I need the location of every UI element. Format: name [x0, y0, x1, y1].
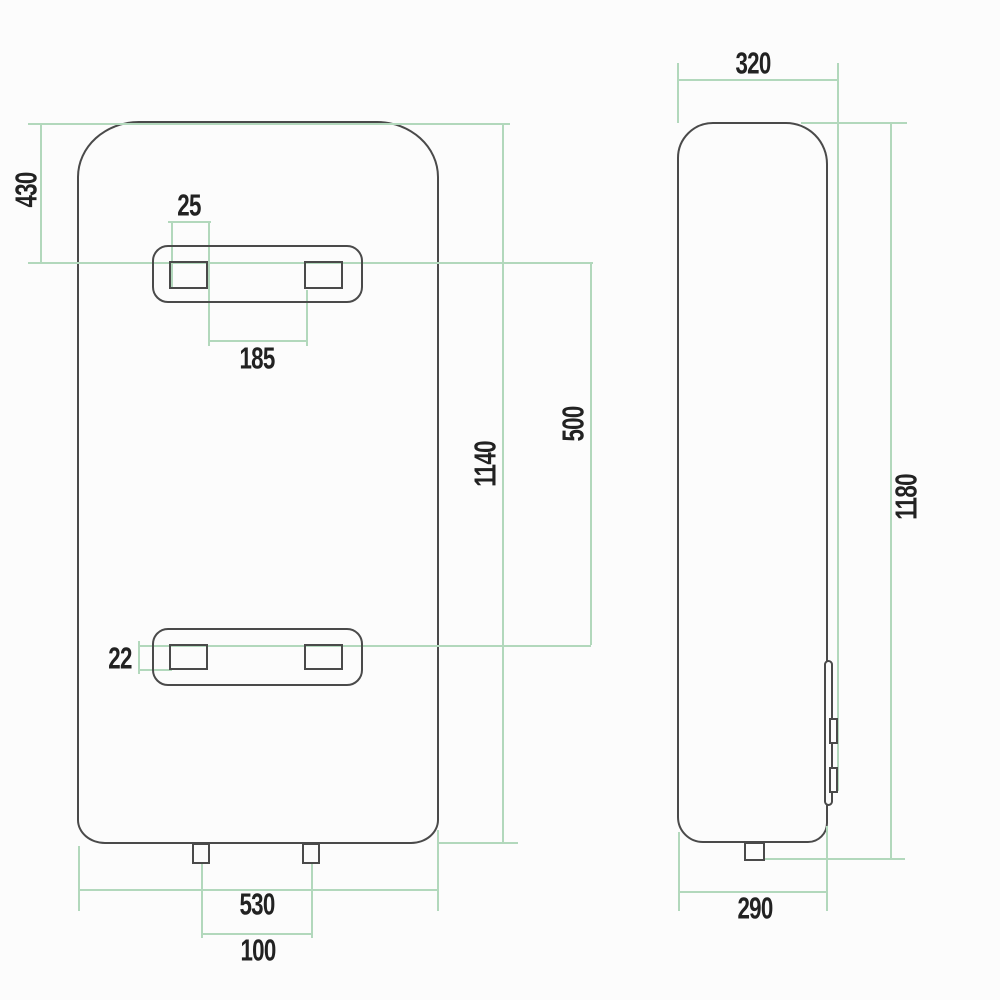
- dim-label-500: 500: [558, 406, 589, 441]
- extension-line-100-left: [201, 862, 203, 938]
- upper-bracket-slot-left: [169, 261, 208, 289]
- dim-label-22: 22: [108, 643, 131, 674]
- dim-label-25: 25: [177, 190, 200, 221]
- extension-line-290-right: [826, 826, 828, 911]
- dim-label-320: 320: [735, 48, 770, 79]
- extension-line-tank-top: [28, 123, 510, 125]
- dim-label-290: 290: [737, 893, 772, 924]
- dim-label-100: 100: [240, 935, 275, 966]
- extension-line-290-left: [678, 832, 680, 911]
- rear-hook-lower: [829, 767, 838, 793]
- dim-label-530: 530: [239, 889, 274, 920]
- side-pipe-stub: [744, 842, 765, 861]
- lower-bracket-slot-left: [169, 644, 208, 670]
- lower-bracket-slot-right: [304, 644, 343, 670]
- dim-line-22: [138, 641, 140, 674]
- front-pipe-stub-left: [192, 843, 210, 864]
- upper-bracket-slot-right: [304, 261, 343, 289]
- front-view-body-outline: [77, 121, 439, 844]
- extension-line-530-left: [78, 846, 80, 911]
- extension-line-530-right: [437, 830, 439, 911]
- extension-line-320-left: [677, 63, 679, 123]
- extension-line-100-right: [311, 862, 313, 938]
- extension-line-1180-bottom: [765, 858, 905, 860]
- rear-hook-upper: [829, 718, 838, 744]
- dim-label-185: 185: [239, 343, 274, 374]
- extension-line-tank-bottom: [438, 842, 518, 844]
- dim-label-430: 430: [11, 172, 42, 207]
- front-pipe-stub-right: [302, 843, 320, 864]
- dim-label-1140: 1140: [470, 441, 501, 487]
- extension-line-320-right: [837, 63, 839, 791]
- dim-line-500: [590, 262, 592, 645]
- side-view-body-outline: [677, 122, 828, 843]
- dimension-drawing: 430 25 185 1140 500 22 530 100 320 1180 …: [0, 0, 1000, 1000]
- dim-label-1180: 1180: [891, 474, 922, 520]
